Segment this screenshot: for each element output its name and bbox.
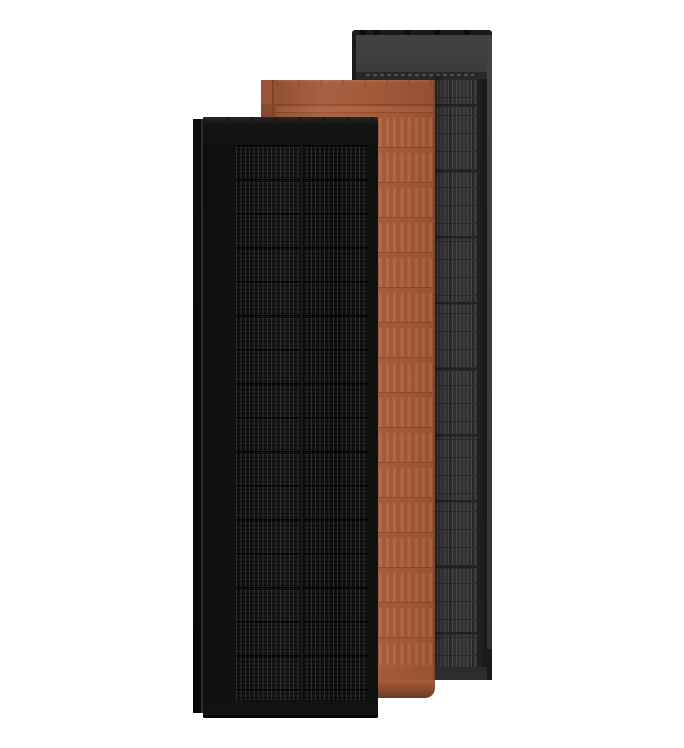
gray-frame-right-face (487, 35, 492, 649)
black-lip-ticks (203, 117, 378, 121)
black-center-seam (300, 145, 303, 700)
terracotta-right-edge (432, 80, 435, 680)
solar-shingles-product-image (0, 0, 684, 748)
gray-header-plate (356, 35, 488, 72)
gray-vent-line (366, 74, 474, 76)
black-header-plate (203, 124, 378, 145)
shadow-from-terracotta (435, 75, 444, 667)
gray-vent-strip (356, 72, 488, 79)
terracotta-header-plate (276, 80, 435, 104)
shingle-matte-black (193, 117, 378, 718)
black-bottom-edge (203, 715, 378, 718)
black-top-lip (203, 117, 378, 124)
gray-frame-inner-shadow (477, 79, 487, 667)
terracotta-header-ticks (276, 80, 435, 86)
black-panel-body (203, 117, 378, 718)
